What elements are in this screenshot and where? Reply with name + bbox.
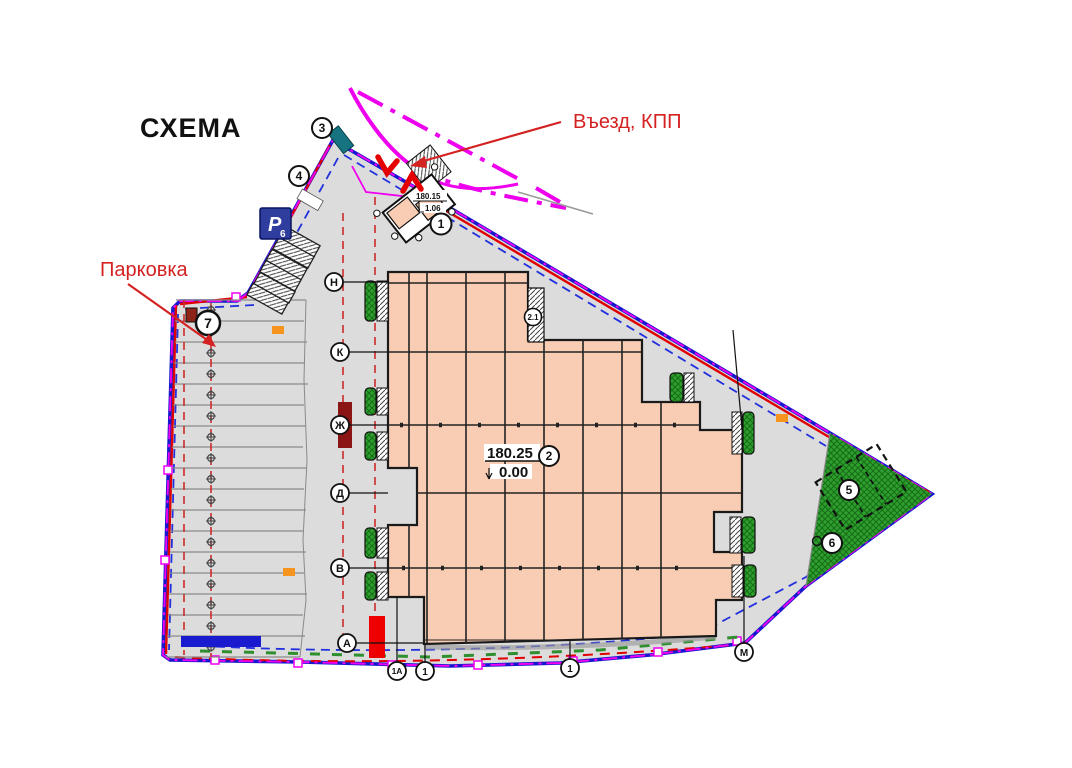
grid-row-n: Н [330, 277, 338, 289]
grid-row-v: В [336, 563, 344, 575]
entrance-label: Въезд, КПП [573, 111, 681, 133]
parking-sign-index: 6 [280, 229, 286, 240]
grid-row-zh: Ж [334, 420, 345, 432]
kpp-elevation-low: 1.06 [425, 204, 441, 213]
bubble-4: 4 [296, 169, 303, 183]
orange-marker-2 [283, 568, 295, 576]
page-title: СХЕМА [140, 113, 241, 143]
grid-col-1b: 1 [567, 664, 573, 675]
grid-row-k: К [337, 347, 344, 359]
elevation-zero-value: 0.00 [499, 464, 528, 481]
grid-col-m: М [740, 648, 748, 659]
bubble-7: 7 [204, 315, 212, 331]
parking-sign: Р 6 [260, 208, 291, 240]
grid-row-d: Д [336, 488, 344, 500]
grid-row-a: А [343, 638, 351, 650]
entrance-arrow-line [420, 122, 561, 162]
kpp-bubble: 1 [438, 217, 445, 231]
kpp-elevation-top: 180.15 [416, 192, 441, 201]
annex-bubble: 2.1 [527, 313, 539, 322]
road-upper-diagonal-end [536, 188, 560, 202]
annex-bubble-group: 2.1 [525, 309, 542, 326]
access-roads [350, 88, 593, 214]
site-plan-page: Р 6 [0, 0, 1072, 768]
grid-col-1a: 1А [392, 666, 403, 676]
bubble-3: 3 [319, 121, 326, 135]
road-gray-edge [518, 192, 593, 214]
red-rect [369, 616, 385, 658]
parking-label: Парковка [100, 259, 189, 281]
blue-strip [181, 636, 261, 647]
grid-col-1: 1 [422, 667, 428, 678]
sports-bubble: 5 [846, 483, 853, 497]
orange-marker-3 [776, 414, 788, 422]
elevation-top-value: 180.25 [487, 445, 533, 462]
orange-marker-1 [272, 326, 284, 334]
lawn-bubble: 6 [829, 536, 836, 550]
building-bubble: 2 [546, 449, 553, 463]
site-plan: Р 6 [0, 0, 1072, 768]
